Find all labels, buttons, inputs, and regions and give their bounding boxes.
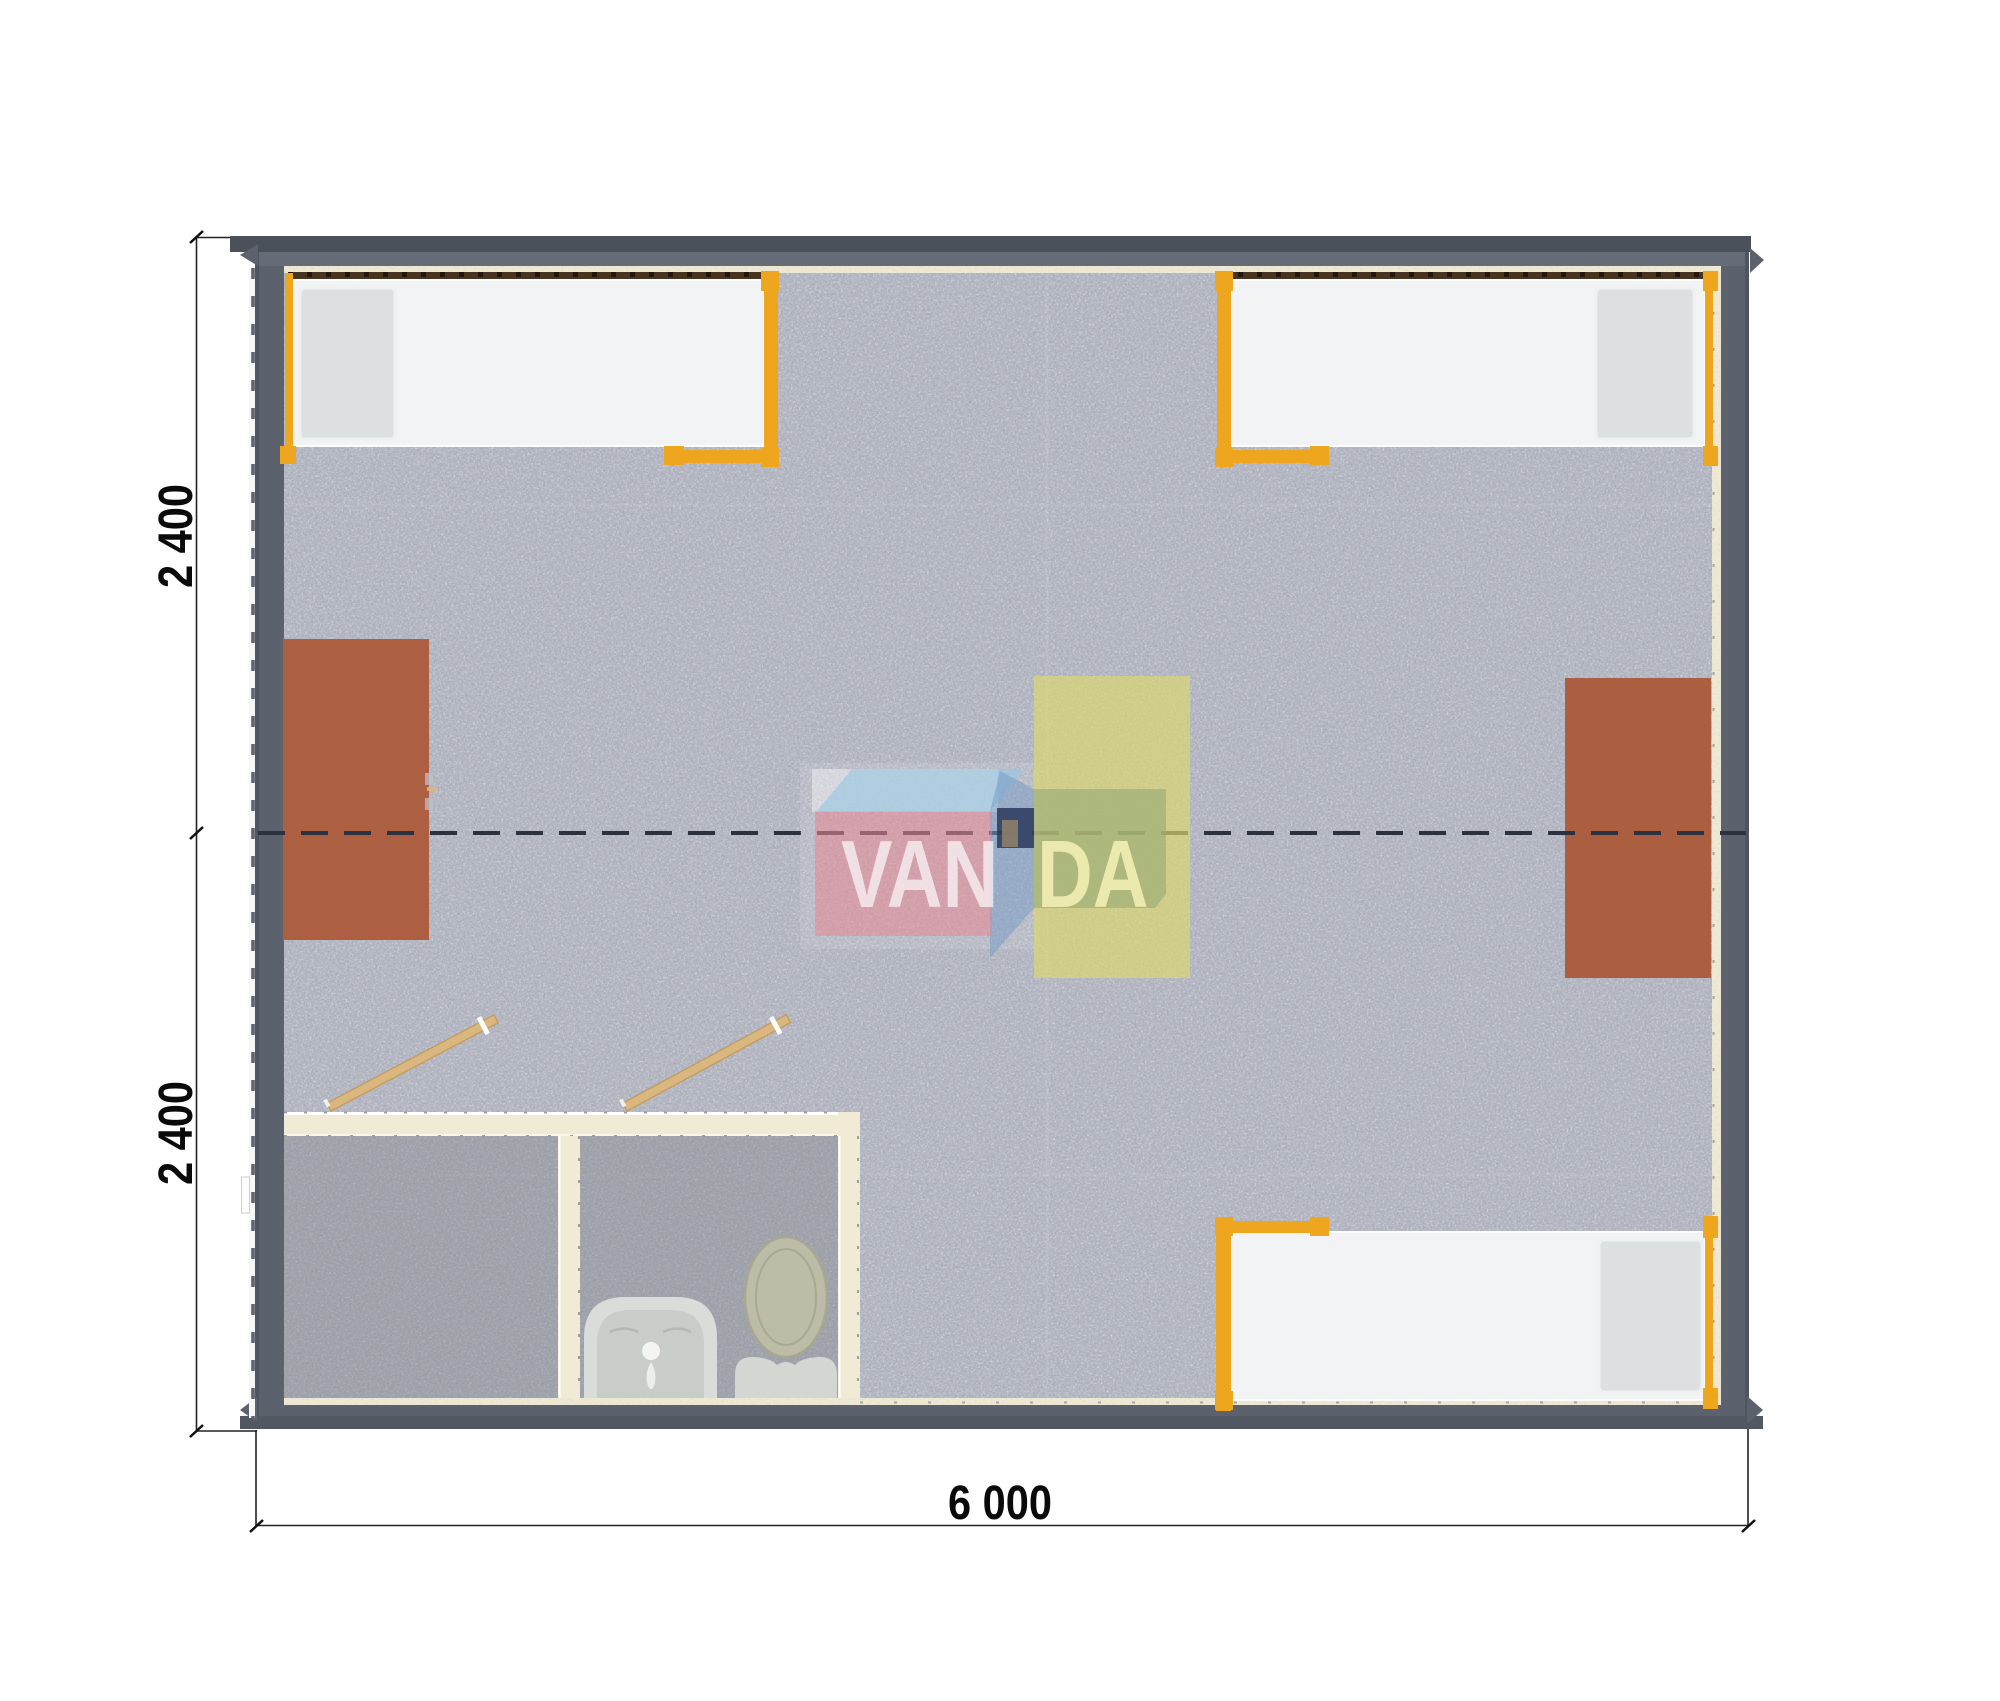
svg-text:6 000: 6 000 [948, 1477, 1052, 1530]
svg-text:2 400: 2 400 [150, 1081, 203, 1185]
svg-text:VAN: VAN [841, 821, 998, 928]
svg-text:DA: DA [1037, 821, 1149, 928]
svg-text:2 400: 2 400 [150, 484, 203, 588]
